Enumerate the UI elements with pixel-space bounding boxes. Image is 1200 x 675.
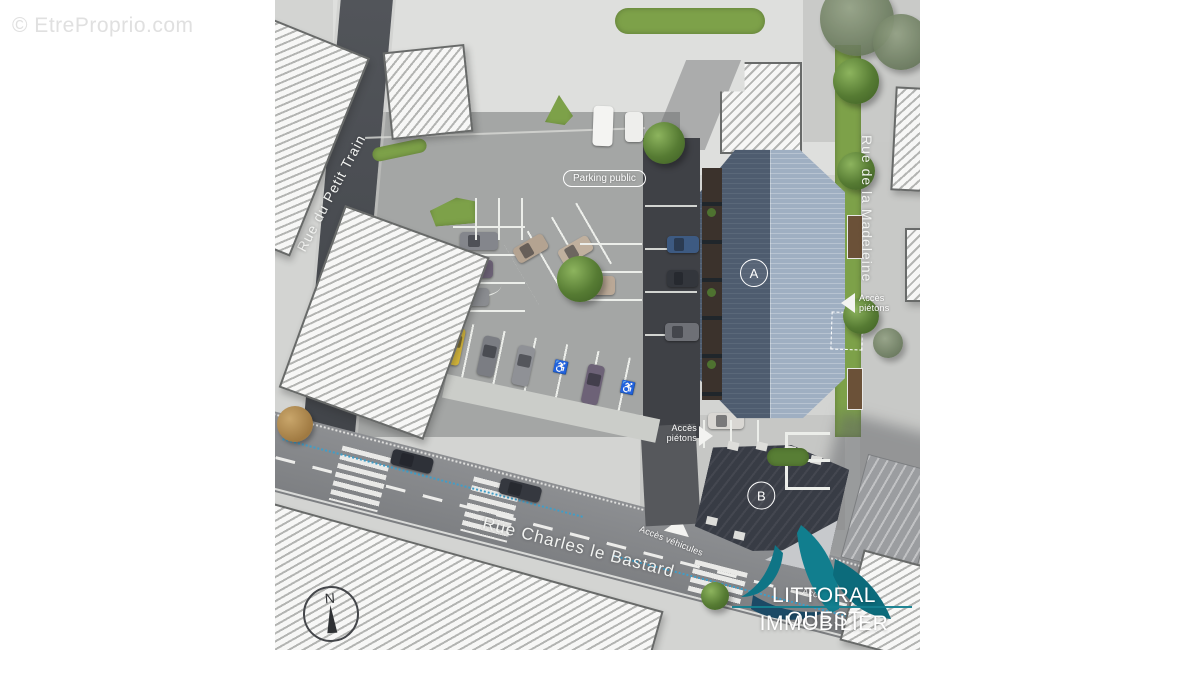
car <box>667 236 699 253</box>
car <box>512 233 550 265</box>
handicap-stall-icon: ♿ <box>619 381 637 397</box>
tree <box>873 328 903 358</box>
tree <box>701 582 729 610</box>
stall-line <box>645 205 697 207</box>
van <box>592 106 613 147</box>
tree <box>833 58 879 104</box>
stall-line <box>498 198 500 240</box>
car <box>665 323 699 341</box>
stall-line <box>475 198 477 240</box>
balcony-plant <box>707 208 716 217</box>
compass-needle <box>325 605 337 634</box>
parking-marking <box>785 432 830 435</box>
building-b-label: B <box>747 482 775 510</box>
car <box>580 363 605 406</box>
hedge <box>767 448 809 466</box>
parking-public-badge: Parking public <box>563 170 646 187</box>
watermark: © EtreProprio.com <box>12 14 194 38</box>
existing-building <box>383 44 474 140</box>
tree-autumn <box>277 406 313 442</box>
stall-line <box>580 243 642 245</box>
agency-logo: Accès LITTORAL OUEST IMMOBILIER <box>730 520 920 650</box>
parking-marking <box>785 487 830 490</box>
stall-line <box>453 226 525 228</box>
existing-building <box>905 228 920 302</box>
van <box>625 112 643 142</box>
tree <box>873 14 920 70</box>
cycle-lane-line <box>282 438 583 518</box>
building-a: A <box>700 148 845 420</box>
stall-line <box>645 291 697 293</box>
grass-lawn-top <box>615 8 765 34</box>
driveway-asphalt <box>643 138 700 438</box>
acces-pietons-label-center: Accès piétons <box>663 424 697 444</box>
balcony-plant <box>707 288 716 297</box>
acces-pietons-label-east: Accès piétons <box>859 294 889 314</box>
logo-text-line2: IMMOBILIER <box>734 612 914 636</box>
existing-building <box>890 86 920 193</box>
car <box>667 270 698 287</box>
building-a-label: A <box>740 259 768 287</box>
terrace <box>847 368 863 410</box>
car <box>511 344 536 387</box>
car <box>476 335 501 378</box>
building-a-ridge-line <box>770 150 771 418</box>
balcony-plant <box>707 360 716 369</box>
car <box>460 232 498 250</box>
street-name-madeleine: Rue de la Madeleine <box>859 135 875 282</box>
handicap-stall-icon: ♿ <box>552 360 570 376</box>
site-plan-image: Rue du Petit Train Rue Charles le Bastar… <box>0 0 1200 675</box>
acces-pietons-arrow-center <box>699 426 713 446</box>
tree <box>643 122 685 164</box>
acces-pietons-arrow-east <box>841 293 855 313</box>
tree <box>557 256 603 302</box>
